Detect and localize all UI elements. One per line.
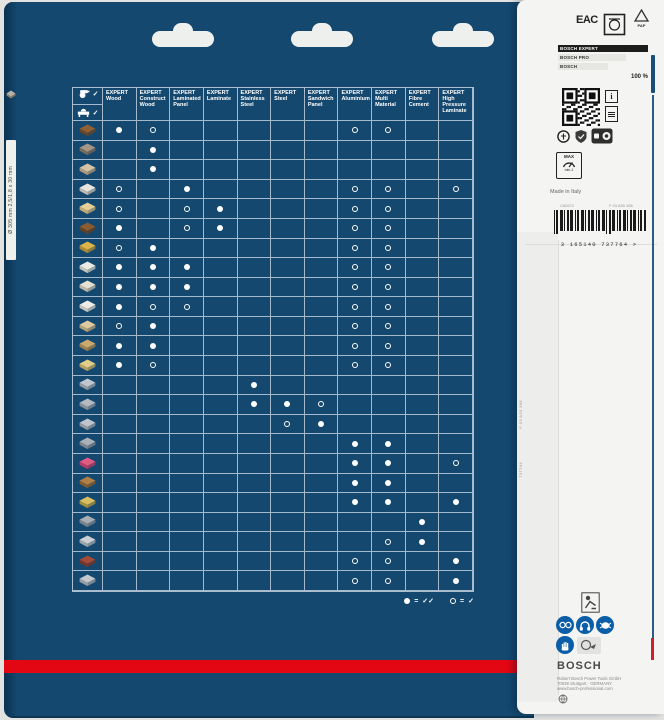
matrix-cell — [439, 258, 473, 278]
matrix-cell — [137, 160, 171, 180]
matrix-cell — [103, 199, 137, 219]
matrix-cell — [305, 395, 339, 415]
matrix-cell — [204, 160, 238, 180]
rating-dot-hollow — [352, 304, 358, 310]
matrix-cell — [406, 454, 440, 474]
matrix-cell — [103, 180, 137, 200]
manual-icon — [605, 106, 618, 122]
matrix-cell — [271, 513, 305, 533]
rating-dot-filled — [453, 558, 459, 564]
material-icon-melamine-panel — [73, 258, 103, 278]
safety-icons-row-2 — [556, 636, 601, 654]
corner-row: ✓ — [73, 105, 102, 123]
rating-dot-filled — [318, 421, 324, 427]
matrix-cell — [338, 532, 372, 552]
matrix-cell — [271, 219, 305, 239]
matrix-cell — [406, 493, 440, 513]
rating-dot-hollow — [352, 323, 358, 329]
matrix-cell — [271, 278, 305, 298]
matrix-cell — [338, 317, 372, 337]
rating-dot-hollow — [385, 127, 391, 133]
rating-dot-filled — [116, 284, 122, 290]
matrix-cell — [103, 376, 137, 396]
matrix-cell — [338, 474, 372, 494]
matrix-cell — [271, 199, 305, 219]
matrix-cell — [439, 474, 473, 494]
matrix-cell — [238, 395, 272, 415]
rating-dot-filled — [284, 401, 290, 407]
matrix-cell — [406, 121, 440, 141]
info-icon: i — [605, 90, 618, 103]
matrix-cell — [439, 336, 473, 356]
matrix-cell — [103, 160, 137, 180]
rating-dot-filled — [184, 284, 190, 290]
pap-recycling-icon: PAP — [634, 9, 649, 28]
matrix-cell — [170, 336, 204, 356]
circular-arrows-icon — [556, 129, 571, 144]
matrix-cell — [170, 199, 204, 219]
matrix-cell — [372, 376, 406, 396]
card-edge-line — [652, 95, 654, 638]
compatibility-matrix: ✓✓EXPERTWoodEXPERTConstruct WoodEXPERTLa… — [72, 87, 474, 592]
rating-dot-filled — [150, 264, 156, 270]
matrix-cell — [406, 395, 440, 415]
matrix-cell — [103, 434, 137, 454]
material-icon-plywood — [73, 317, 103, 337]
column-header-multi-material: EXPERTMulti Material — [372, 88, 406, 121]
matrix-cell — [338, 160, 372, 180]
matrix-cell — [338, 376, 372, 396]
matrix-cell — [103, 219, 137, 239]
material-icon-osb-board — [73, 239, 103, 259]
rating-dot-hollow — [352, 558, 358, 564]
matrix-cell — [372, 141, 406, 161]
matrix-cell — [305, 317, 339, 337]
matrix-cell — [238, 336, 272, 356]
matrix-cell — [305, 199, 339, 219]
comparison-bar-bosch: BOSCH — [558, 63, 608, 70]
ean-barcode: 3 165140 737764 > — [552, 210, 646, 248]
matrix-cell — [103, 395, 137, 415]
matrix-cell — [406, 474, 440, 494]
matrix-cell — [439, 493, 473, 513]
rating-dot-hollow — [385, 264, 391, 270]
matrix-cell — [406, 141, 440, 161]
matrix-cell — [170, 180, 204, 200]
matrix-cell — [103, 454, 137, 474]
material-icon-hardboard — [73, 219, 103, 239]
rating-dot-filled — [352, 460, 358, 466]
matrix-cell — [406, 571, 440, 591]
matrix-cell — [137, 317, 171, 337]
matrix-cell — [439, 239, 473, 259]
material-icon-parquet — [73, 336, 103, 356]
matrix-cell — [137, 278, 171, 298]
matrix-cell — [238, 454, 272, 474]
material-icon-construction-wood-nails — [73, 141, 103, 161]
matrix-cell — [406, 336, 440, 356]
material-icon-solid-hardwood — [73, 121, 103, 141]
rating-dot-hollow — [352, 578, 358, 584]
matrix-cell — [439, 199, 473, 219]
table-saw-icon — [77, 105, 90, 123]
matrix-cell — [271, 317, 305, 337]
matrix-cell — [338, 415, 372, 435]
matrix-cell — [439, 415, 473, 435]
matrix-cell — [305, 278, 339, 298]
packaging-back-card: Ø 305 mm 2,5/1,8 x 30 mm ✓✓EXPERTWoodEXP… — [4, 2, 534, 718]
matrix-cell — [271, 356, 305, 376]
matrix-cell — [305, 415, 339, 435]
matrix-cell — [439, 278, 473, 298]
red-brand-stripe — [4, 660, 534, 673]
matrix-cell — [204, 395, 238, 415]
rating-dot-hollow — [352, 206, 358, 212]
matrix-cell — [137, 258, 171, 278]
matrix-cell — [238, 474, 272, 494]
matrix-cell — [204, 493, 238, 513]
hang-slot-3 — [432, 31, 494, 47]
rating-dot-filled — [352, 499, 358, 505]
column-header-laminated-panel: EXPERTLaminated Panel — [170, 88, 204, 121]
hang-slot-2 — [291, 31, 353, 47]
material-icon-rough-sawn-timber — [73, 160, 103, 180]
shield-icon — [574, 129, 588, 144]
matrix-cell — [204, 258, 238, 278]
matrix-cell — [372, 199, 406, 219]
matrix-cell — [137, 376, 171, 396]
matrix-cell — [406, 180, 440, 200]
material-icon-aluminium-profile — [73, 376, 103, 396]
rating-dot-filled — [116, 127, 122, 133]
matrix-cell — [204, 278, 238, 298]
matrix-cell — [406, 219, 440, 239]
matrix-cell — [103, 297, 137, 317]
matrix-cell — [439, 180, 473, 200]
rating-dot-filled — [150, 245, 156, 251]
rating-dot-filled — [352, 441, 358, 447]
rating-dot-hollow — [352, 186, 358, 192]
safety-goggles-icon — [556, 616, 574, 634]
material-icon-aluminium-tube — [73, 395, 103, 415]
matrix-cell — [338, 356, 372, 376]
matrix-cell — [372, 552, 406, 572]
matrix-cell — [137, 552, 171, 572]
matrix-cell — [137, 415, 171, 435]
tool-check: ✓ — [93, 91, 99, 98]
rating-dot-hollow — [385, 578, 391, 584]
rating-dot-hollow — [352, 264, 358, 270]
matrix-cell — [305, 474, 339, 494]
column-header-sandwich-panel: EXPERTSandwich Panel — [305, 88, 339, 121]
matrix-cell — [204, 180, 238, 200]
matrix-cell — [238, 376, 272, 396]
rating-dot-filled — [453, 578, 459, 584]
matrix-cell — [338, 552, 372, 572]
matrix-cell — [406, 278, 440, 298]
matrix-cell — [137, 180, 171, 200]
rating-dot-filled — [385, 460, 391, 466]
matrix-cell — [406, 239, 440, 259]
rating-dot-hollow — [284, 421, 290, 427]
matrix-cell — [238, 513, 272, 533]
bars-100-percent: 100 % — [631, 74, 648, 80]
matrix-cell — [204, 336, 238, 356]
matrix-cell — [170, 141, 204, 161]
matrix-legend: = ✓✓ = ✓ — [334, 597, 474, 605]
matrix-cell — [170, 297, 204, 317]
matrix-cell — [406, 317, 440, 337]
matrix-cell — [170, 415, 204, 435]
matrix-cell — [372, 219, 406, 239]
column-header-laminate: EXPERTLaminate — [204, 88, 238, 121]
matrix-cell — [439, 160, 473, 180]
rating-dot-filled — [184, 186, 190, 192]
matrix-cell — [271, 160, 305, 180]
rating-dot-hollow — [385, 323, 391, 329]
matrix-cell — [439, 395, 473, 415]
matrix-cell — [439, 454, 473, 474]
rating-dot-filled — [352, 480, 358, 486]
matrix-cell — [238, 278, 272, 298]
matrix-cell — [338, 219, 372, 239]
matrix-cell — [338, 297, 372, 317]
rating-dot-hollow — [385, 558, 391, 564]
matrix-cell — [271, 376, 305, 396]
flap-code-2: 737764 — [518, 462, 523, 478]
matrix-cell — [305, 336, 339, 356]
rating-dot-hollow — [150, 304, 156, 310]
rating-dot-hollow — [385, 225, 391, 231]
matrix-cell — [137, 239, 171, 259]
material-icon-steel-profile — [73, 434, 103, 454]
matrix-cell — [338, 336, 372, 356]
rating-dot-filled — [150, 343, 156, 349]
matrix-cell — [137, 141, 171, 161]
matrix-cell — [137, 434, 171, 454]
matrix-cell — [406, 376, 440, 396]
matrix-cell — [372, 454, 406, 474]
material-icon-cement-tile — [73, 571, 103, 591]
matrix-cell — [305, 141, 339, 161]
production-code: C60572 — [560, 203, 574, 208]
matrix-cell — [439, 121, 473, 141]
matrix-cell — [238, 258, 272, 278]
matrix-cell — [238, 199, 272, 219]
matrix-cell — [271, 141, 305, 161]
matrix-cell — [406, 415, 440, 435]
matrix-cell — [372, 434, 406, 454]
matrix-cell — [271, 297, 305, 317]
brand-comparison-bars: 100 % BOSCH EXPERTBOSCH PROBOSCH — [558, 45, 648, 72]
rating-dot-filled — [217, 206, 223, 212]
matrix-cell — [372, 121, 406, 141]
matrix-cell — [439, 552, 473, 572]
matrix-cell — [170, 160, 204, 180]
matrix-cell — [372, 474, 406, 494]
matrix-cell — [305, 493, 339, 513]
matrix-cell — [406, 258, 440, 278]
matrix-cell — [103, 336, 137, 356]
matrix-cell — [439, 141, 473, 161]
matrix-cell — [238, 317, 272, 337]
panel-fold-flap — [517, 232, 558, 702]
matrix-cell — [103, 474, 137, 494]
matrix-cell — [338, 493, 372, 513]
rating-dot-filled — [150, 147, 156, 153]
matrix-cell — [372, 297, 406, 317]
matrix-cell — [271, 493, 305, 513]
matrix-cell — [204, 121, 238, 141]
bosch-logo: BOSCH — [557, 660, 602, 672]
matrix-cell — [137, 532, 171, 552]
rating-dot-hollow — [453, 186, 459, 192]
matrix-cell — [238, 532, 272, 552]
rating-dot-hollow — [352, 225, 358, 231]
material-icon-coated-panel — [73, 180, 103, 200]
address-line: www.bosch-professional.com — [557, 686, 621, 691]
matrix-cell — [271, 454, 305, 474]
matrix-cell — [271, 258, 305, 278]
matrix-cell — [238, 141, 272, 161]
matrix-cell — [305, 160, 339, 180]
hang-slot-1 — [152, 31, 214, 47]
rating-dot-filled — [385, 441, 391, 447]
matrix-cell — [137, 336, 171, 356]
flap-code-1: F 03 A50 386 — [518, 400, 523, 429]
matrix-cell — [103, 493, 137, 513]
rating-dot-filled — [150, 166, 156, 172]
matrix-cell — [271, 552, 305, 572]
matrix-cell — [103, 513, 137, 533]
safety-icons-row-1 — [556, 616, 614, 634]
rating-dot-hollow — [184, 206, 190, 212]
matrix-cell — [338, 239, 372, 259]
matrix-cell — [439, 219, 473, 239]
matrix-cell — [137, 121, 171, 141]
matrix-cell — [170, 493, 204, 513]
column-header-aluminium: EXPERTAluminium — [338, 88, 372, 121]
dust-mask-icon — [596, 616, 614, 634]
info-panel: EAC PAP 100 % BOSCH EXPERTBOSCH PROBOSCH… — [517, 0, 664, 714]
corner-row: ✓ — [73, 86, 102, 105]
column-header-stainless-steel: EXPERTStainless Steel — [238, 88, 272, 121]
matrix-cell — [103, 571, 137, 591]
matrix-cell — [372, 258, 406, 278]
rating-dot-hollow — [150, 362, 156, 368]
made-in-label: Made in Italy — [550, 189, 581, 195]
matrix-cell — [103, 415, 137, 435]
rating-dot-hollow — [352, 362, 358, 368]
matrix-cell — [406, 199, 440, 219]
matrix-cell — [271, 121, 305, 141]
matrix-cell — [137, 356, 171, 376]
matrix-cell — [238, 180, 272, 200]
rating-dot-hollow — [385, 362, 391, 368]
eac-logo: EAC — [576, 14, 598, 26]
material-icon-plasterboard — [73, 532, 103, 552]
column-header-high-pressure-laminate: EXPERTHigh Pressure Laminate — [439, 88, 473, 121]
matrix-cell — [305, 180, 339, 200]
matrix-cell — [338, 434, 372, 454]
rating-dot-hollow — [385, 245, 391, 251]
matrix-cell — [238, 219, 272, 239]
filled-dot-icon — [404, 598, 410, 604]
rating-dot-hollow — [318, 401, 324, 407]
matrix-cell — [372, 513, 406, 533]
matrix-cell — [204, 317, 238, 337]
material-icon-chipboard — [73, 199, 103, 219]
column-header-wood: EXPERTWood — [103, 88, 137, 121]
rating-dot-hollow — [352, 284, 358, 290]
matrix-cell — [271, 395, 305, 415]
card-edge-red-segment — [651, 638, 654, 660]
rating-dot-hollow — [385, 343, 391, 349]
matrix-cell — [372, 239, 406, 259]
legend-equals: = — [414, 598, 418, 605]
matrix-cell — [238, 121, 272, 141]
matrix-cell — [338, 121, 372, 141]
rating-dot-filled — [116, 304, 122, 310]
matrix-cell — [204, 297, 238, 317]
matrix-cell — [305, 571, 339, 591]
rating-dot-filled — [150, 284, 156, 290]
matrix-cell — [305, 552, 339, 572]
matrix-cell — [170, 571, 204, 591]
matrix-cell — [238, 415, 272, 435]
material-icon-fibre-cement-board — [73, 513, 103, 533]
matrix-cell — [204, 552, 238, 572]
matrix-cell — [204, 356, 238, 376]
matrix-cell — [372, 317, 406, 337]
device-camera-icon — [591, 128, 613, 144]
matrix-cell — [238, 493, 272, 513]
rating-dot-hollow — [184, 225, 190, 231]
matrix-cell — [372, 160, 406, 180]
rating-dot-filled — [385, 480, 391, 486]
material-icon-laminate-flooring — [73, 356, 103, 376]
matrix-cell — [271, 571, 305, 591]
matrix-cell — [439, 376, 473, 396]
matrix-cell — [137, 493, 171, 513]
matrix-cell — [170, 317, 204, 337]
matrix-cell — [439, 532, 473, 552]
matrix-cell — [372, 395, 406, 415]
material-icon-veneered-panel — [73, 278, 103, 298]
matrix-cell — [170, 454, 204, 474]
matrix-cell — [137, 513, 171, 533]
matrix-cell — [238, 297, 272, 317]
material-icon-hpl-board — [73, 552, 103, 572]
matrix-cell — [372, 180, 406, 200]
matrix-cell — [338, 258, 372, 278]
matrix-cell — [204, 199, 238, 219]
material-icon-worktop — [73, 474, 103, 494]
rating-dot-filled — [116, 343, 122, 349]
matrix-cell — [137, 454, 171, 474]
matrix-cell — [406, 552, 440, 572]
service-icons-row — [556, 128, 613, 144]
matrix-cell — [103, 141, 137, 161]
matrix-cell — [305, 513, 339, 533]
tool-check: ✓ — [93, 110, 99, 117]
ean-digits: 3 165140 737764 > — [552, 241, 646, 248]
matrix-cell — [103, 239, 137, 259]
matrix-cell — [406, 513, 440, 533]
max-rpm-icon: MAX min-1 — [556, 152, 582, 179]
matrix-cell — [406, 356, 440, 376]
rating-dot-filled — [184, 264, 190, 270]
